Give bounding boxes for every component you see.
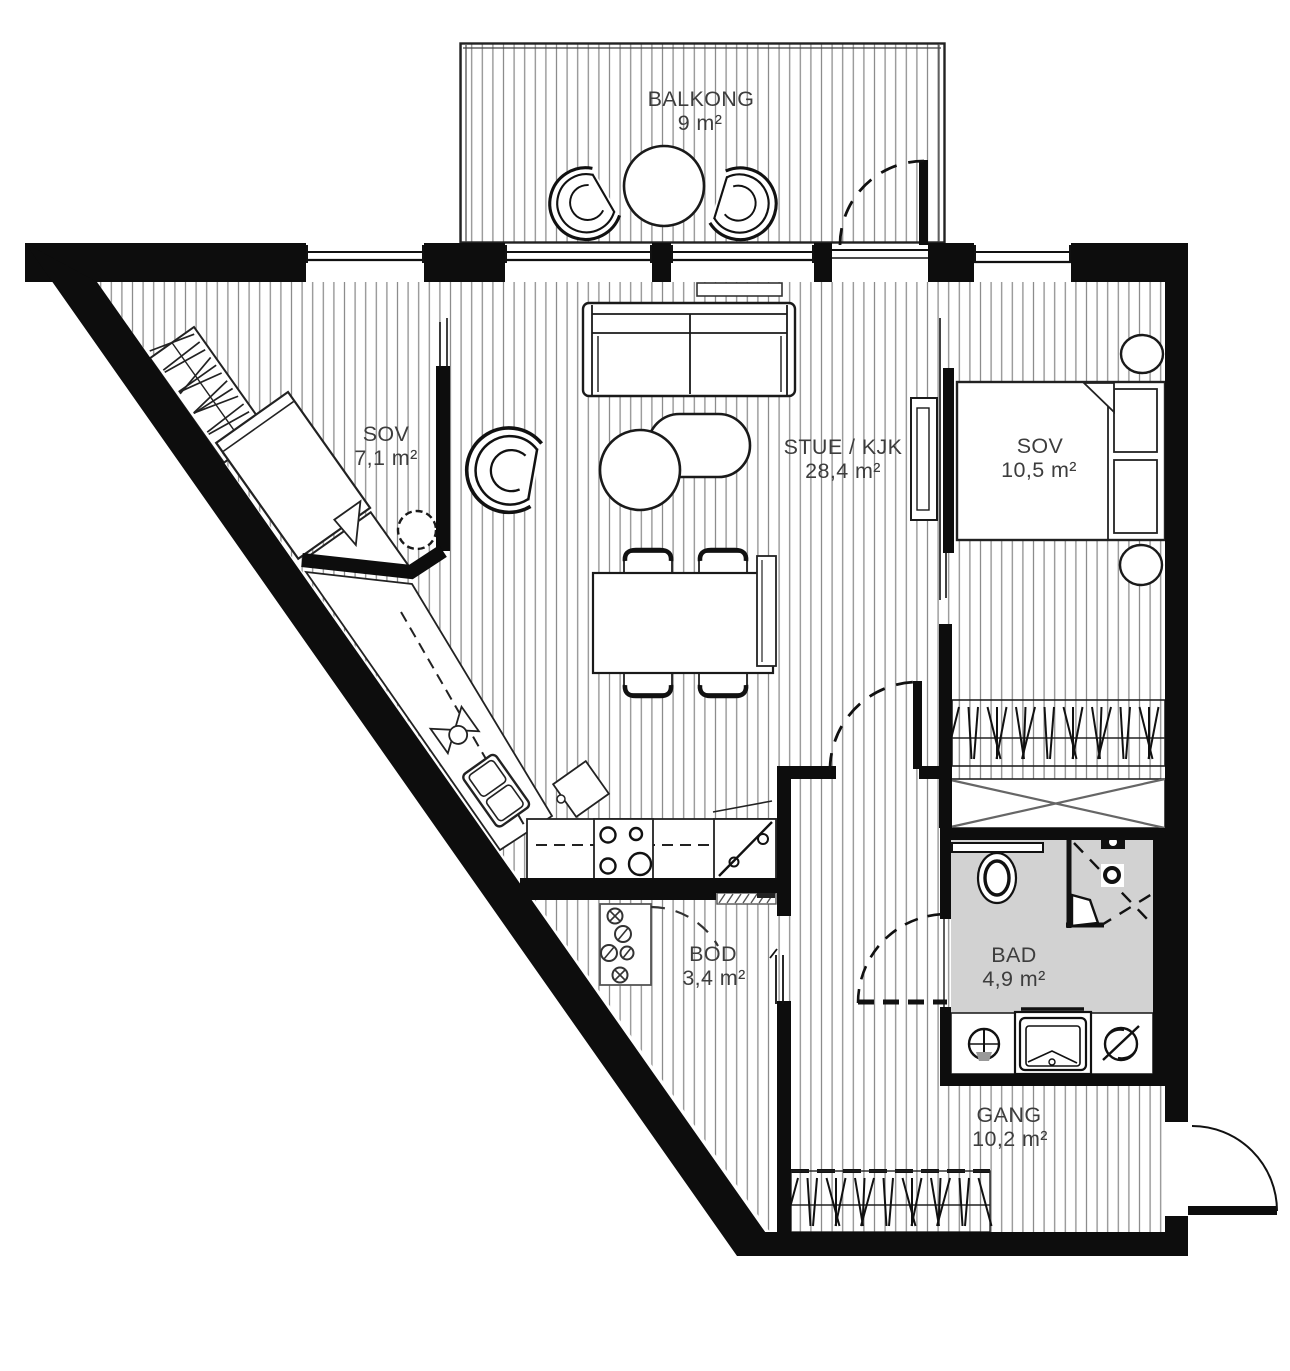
svg-text:10,5 m²: 10,5 m²: [1001, 458, 1077, 482]
svg-text:SOV: SOV: [1017, 434, 1064, 458]
svg-text:4,9 m²: 4,9 m²: [982, 967, 1045, 991]
svg-text:28,4 m²: 28,4 m²: [805, 459, 881, 483]
svg-text:STUE / KJK: STUE / KJK: [784, 435, 903, 459]
svg-text:9 m²: 9 m²: [678, 111, 723, 135]
svg-text:GANG: GANG: [977, 1103, 1042, 1127]
svg-text:3,4 m²: 3,4 m²: [682, 966, 745, 990]
svg-text:10,2 m²: 10,2 m²: [972, 1127, 1048, 1151]
svg-text:BALKONG: BALKONG: [648, 87, 755, 111]
svg-text:BAD: BAD: [991, 943, 1036, 967]
svg-text:SOV: SOV: [363, 422, 410, 446]
svg-text:7,1 m²: 7,1 m²: [354, 446, 417, 470]
svg-text:BOD: BOD: [689, 942, 737, 966]
